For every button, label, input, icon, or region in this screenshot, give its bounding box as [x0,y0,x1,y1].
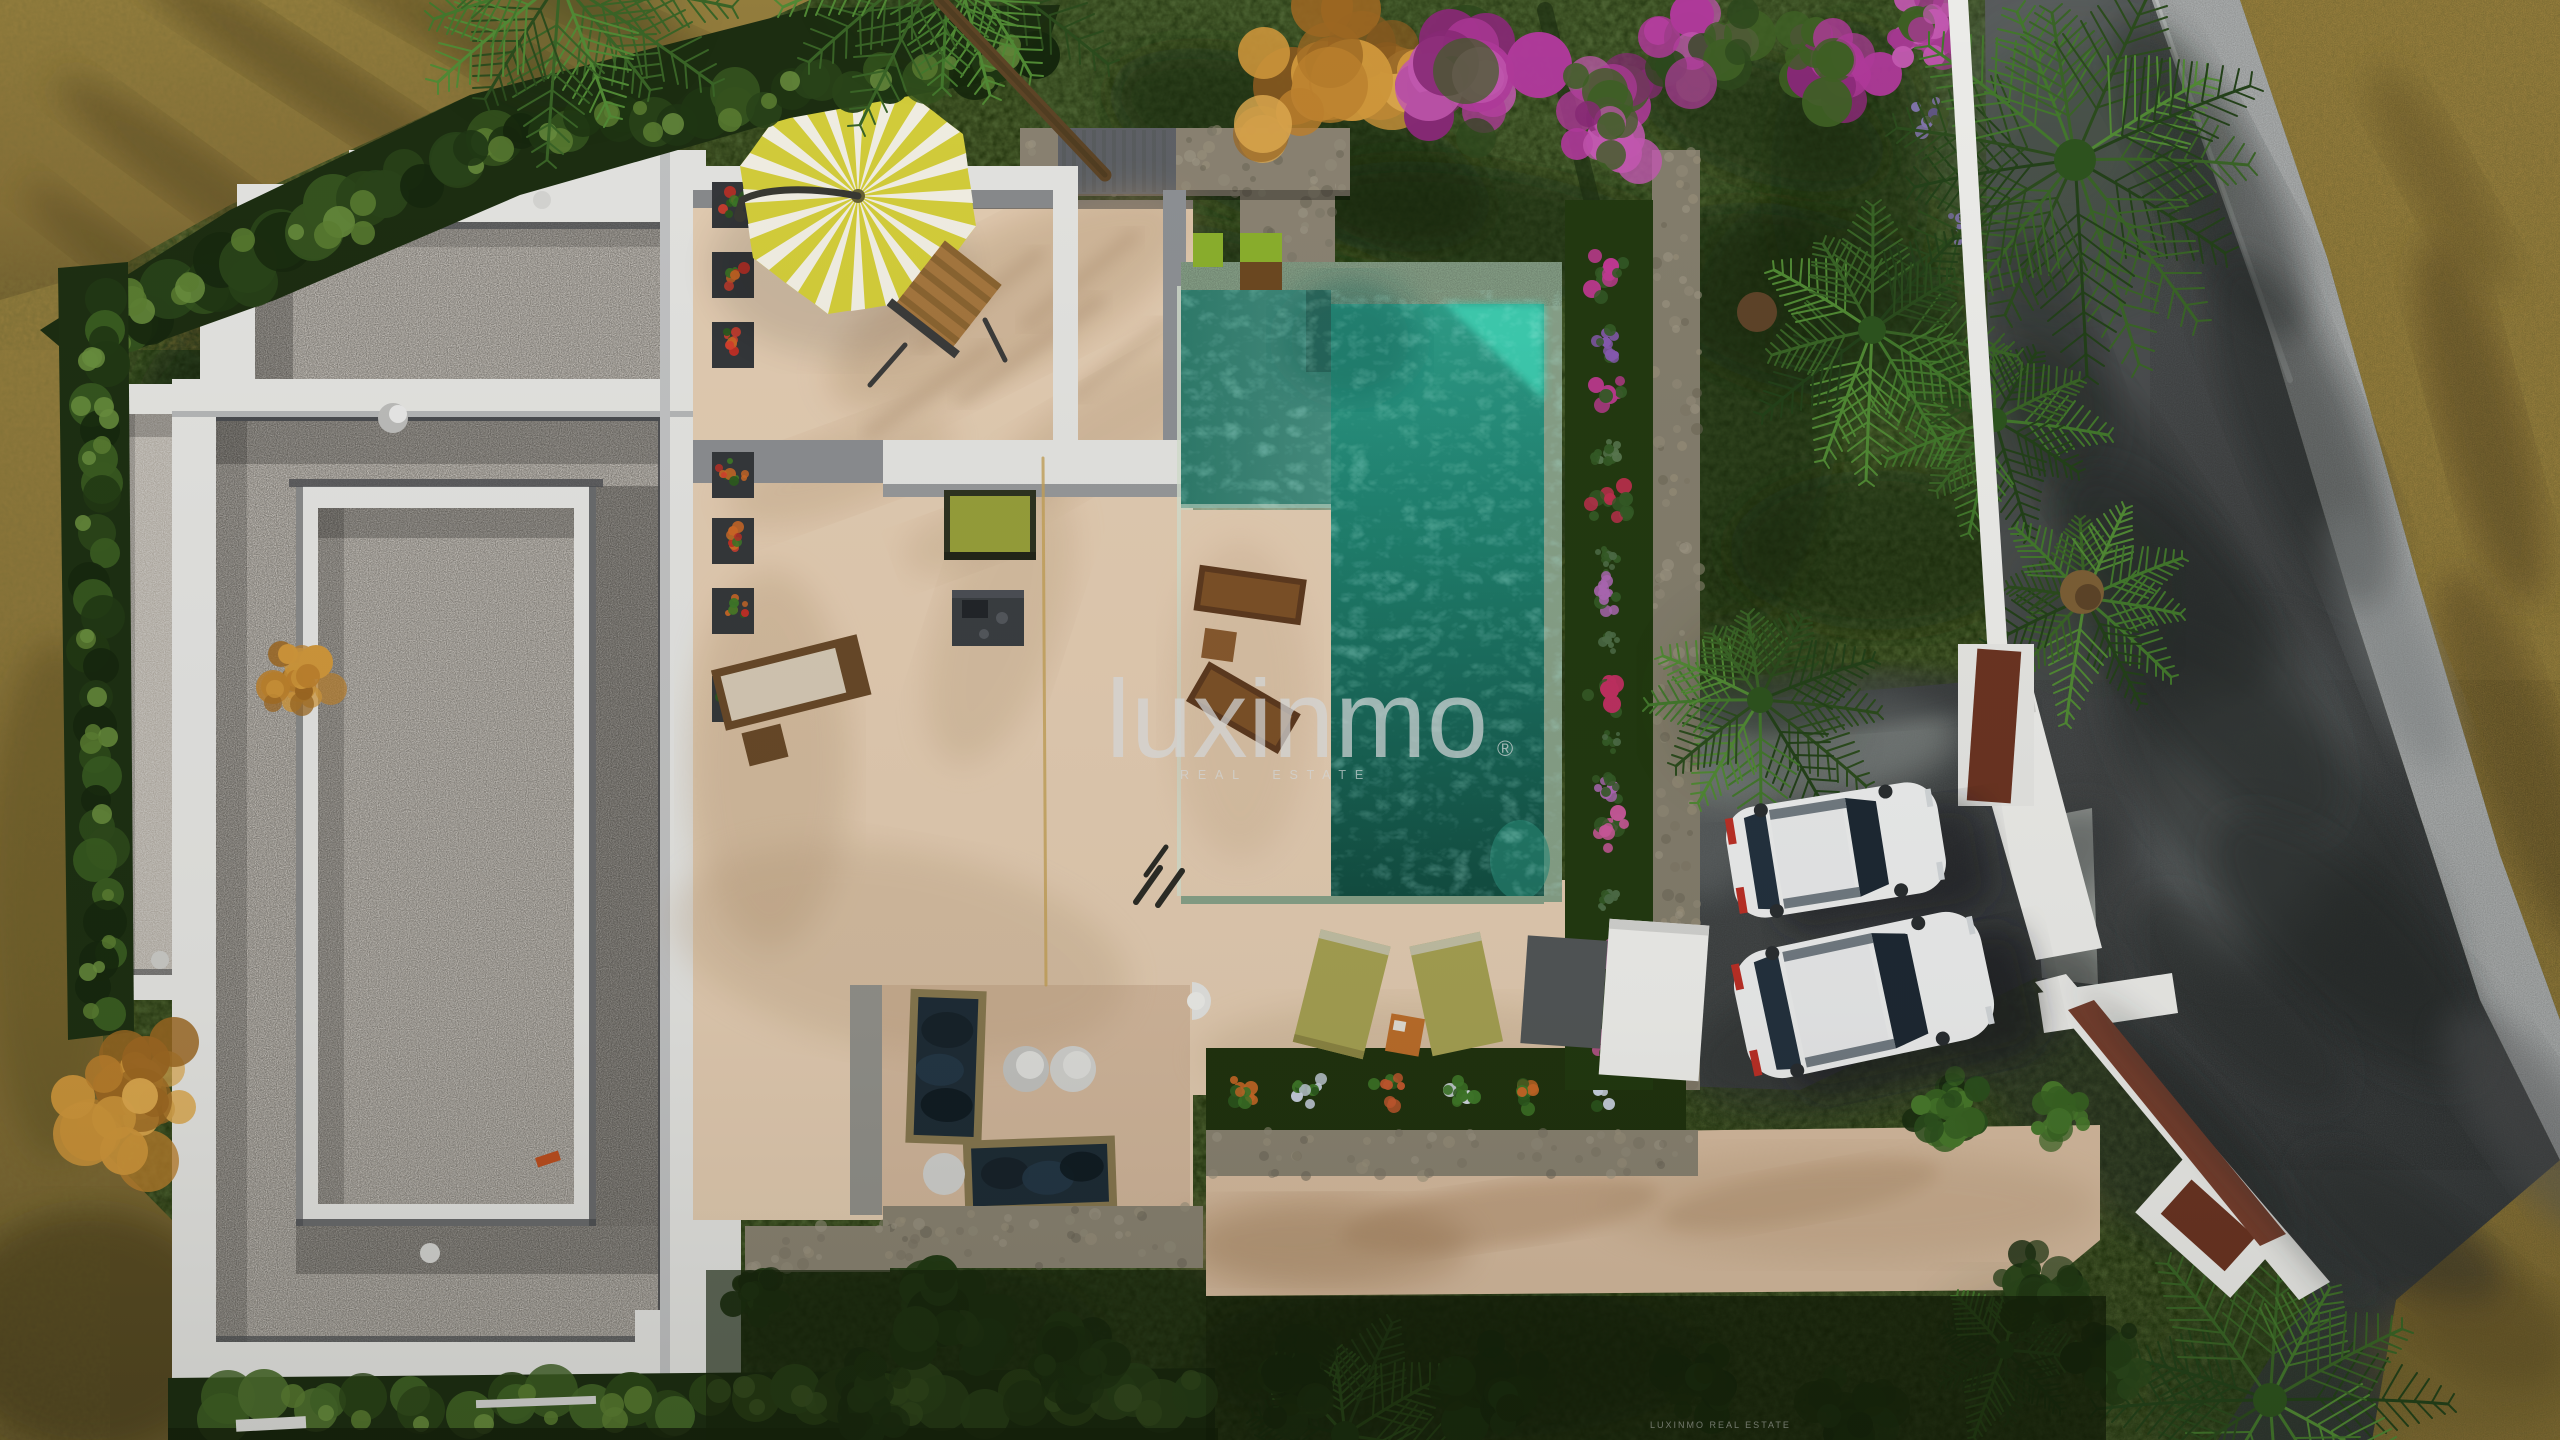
svg-text:®: ® [1497,736,1513,761]
svg-text:REAL ESTATE: REAL ESTATE [1180,768,1372,782]
svg-text:luxinmo: luxinmo [1106,658,1489,781]
svg-text:LUXINMO REAL ESTATE: LUXINMO REAL ESTATE [1650,1420,1791,1430]
